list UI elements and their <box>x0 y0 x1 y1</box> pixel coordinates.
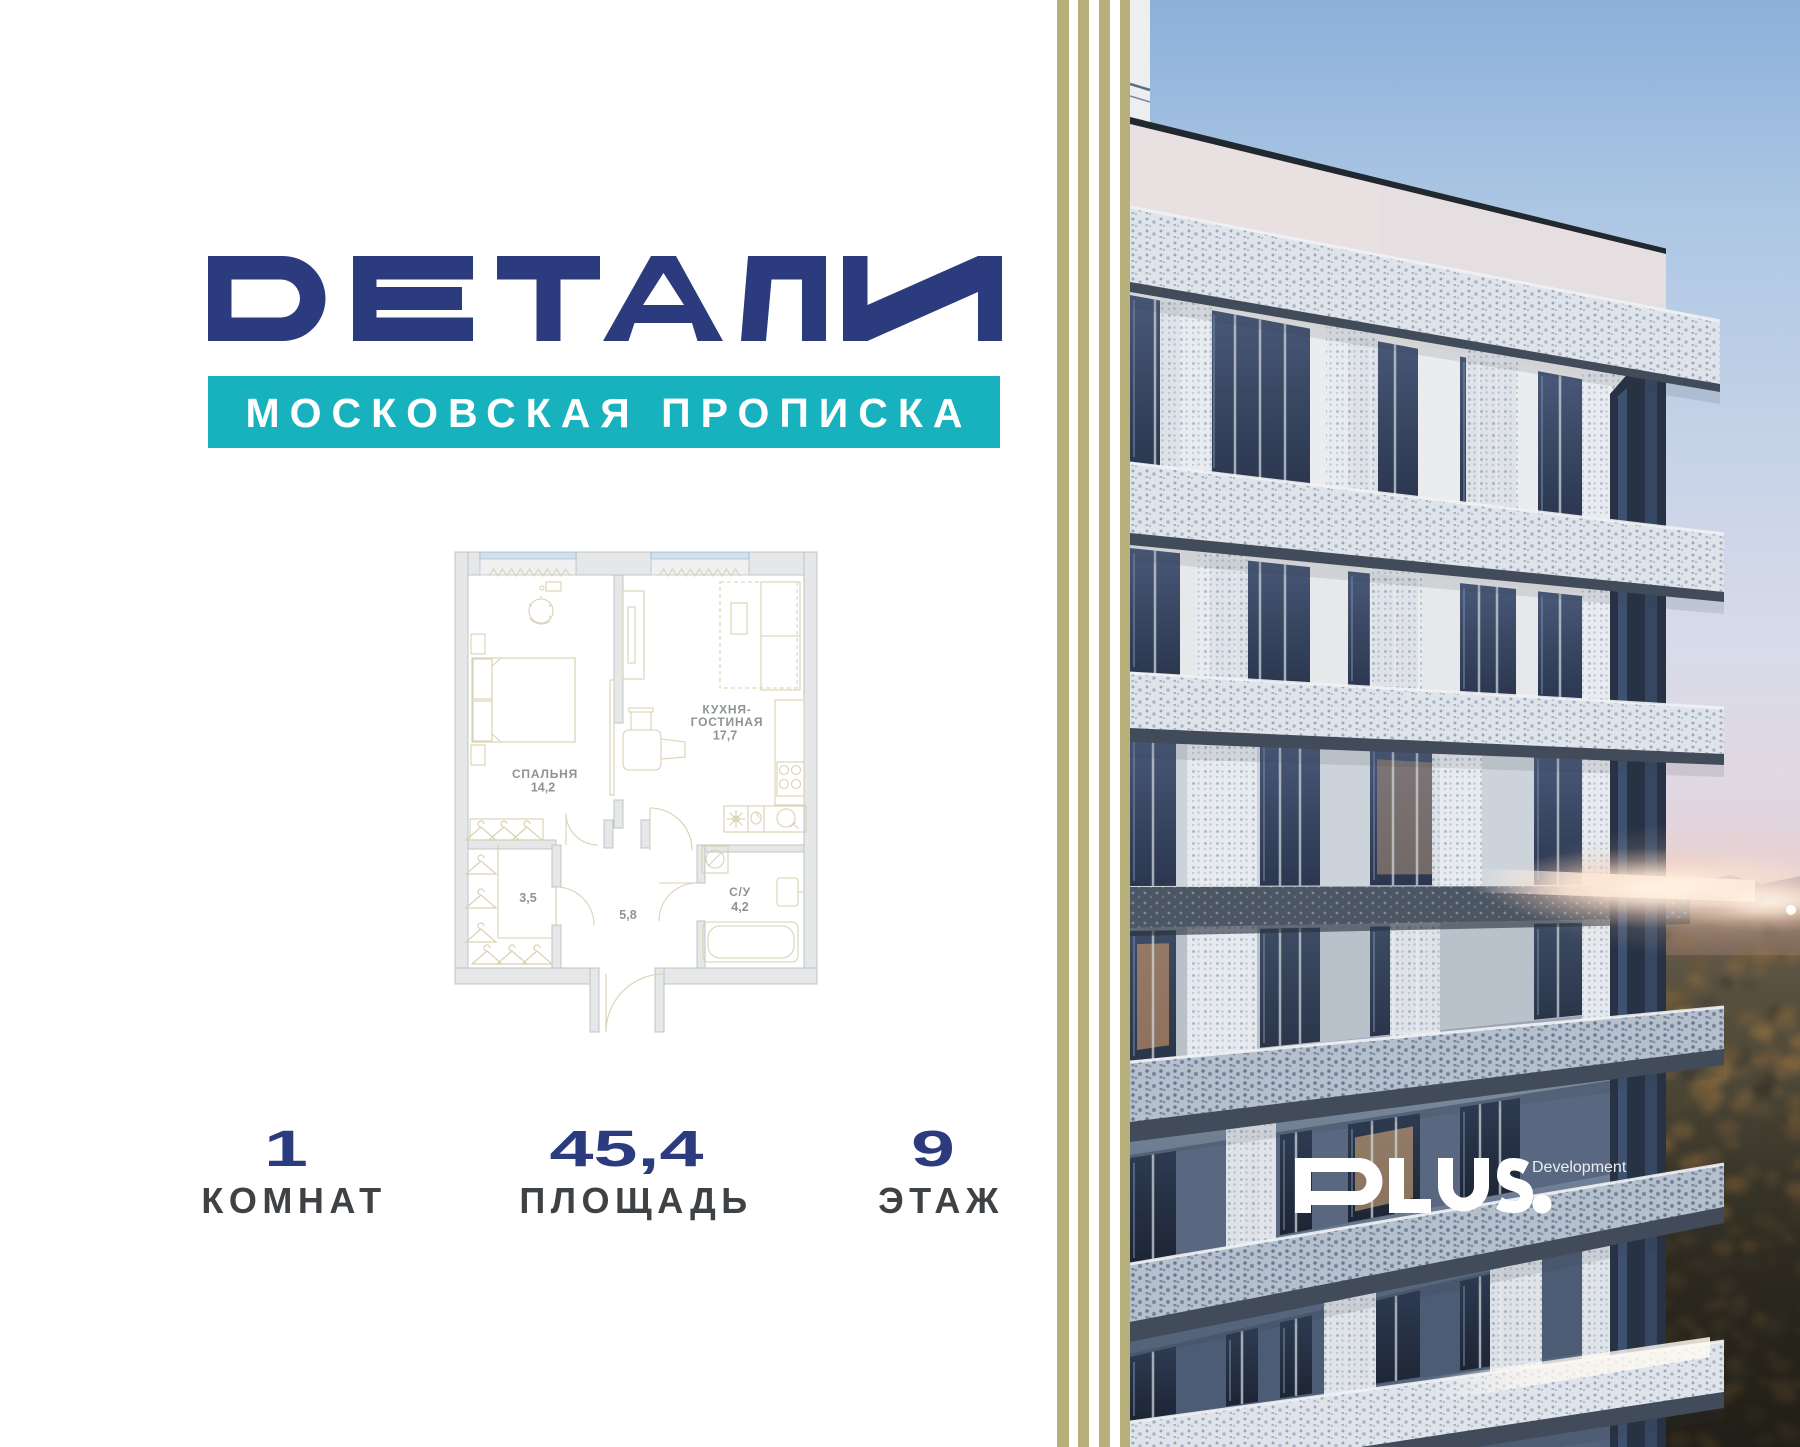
svg-text:С/У: С/У <box>729 885 751 899</box>
svg-text:5,8: 5,8 <box>619 908 636 922</box>
svg-text:4,2: 4,2 <box>731 900 748 914</box>
svg-text:17,7: 17,7 <box>713 729 737 743</box>
svg-text:14,2: 14,2 <box>531 781 555 795</box>
svg-text:3,5: 3,5 <box>519 891 536 905</box>
svg-text:СПАЛЬНЯ: СПАЛЬНЯ <box>512 767 578 781</box>
svg-text:Development: Development <box>1532 1159 1627 1176</box>
svg-text:ГОСТИНАЯ: ГОСТИНАЯ <box>691 715 764 729</box>
